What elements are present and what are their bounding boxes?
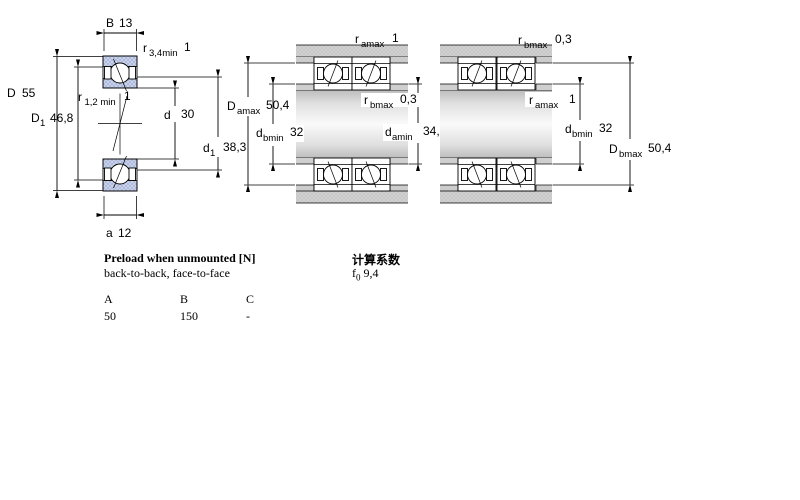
- label-dbmin-sub: bmin: [572, 129, 593, 140]
- label-rbmax-value: 0,3: [400, 92, 417, 106]
- bearing-section: [98, 56, 142, 191]
- label-damin: d: [385, 125, 392, 139]
- bearing-unit: [314, 158, 352, 191]
- label-Dbmax-value: 50,4: [648, 141, 672, 155]
- label-ramax-sub: amax: [361, 39, 384, 50]
- label-D1: D: [31, 111, 40, 125]
- preload-value-A: 50: [104, 309, 116, 324]
- cage: [105, 67, 112, 80]
- single-bearing-cross-section-view: B 13 r 3,4min 1 D 55 D 1 46,8 r 1,2 min …: [7, 16, 247, 240]
- label-B: B: [106, 16, 114, 30]
- label-a-value: 12: [118, 226, 132, 240]
- face-to-face-arrangement-view: r bmax 0,3 r amax 1 d bmin 32 D bmax 50,…: [440, 32, 672, 203]
- label-D: D: [7, 86, 16, 100]
- label-D1-value: 46,8: [50, 111, 74, 125]
- preload-subtitle: back-to-back, face-to-face: [104, 266, 230, 281]
- preload-value-B: 150: [180, 309, 198, 324]
- dimension-lines: [57, 33, 218, 215]
- label-damin-sub: amin: [392, 132, 413, 143]
- label-ramax-value: 1: [392, 31, 399, 45]
- label-Damax-value: 50,4: [266, 98, 290, 112]
- label-dbmin-sub: bmin: [263, 133, 284, 144]
- label-ramax: r: [355, 32, 359, 46]
- cage: [129, 67, 136, 80]
- label-rbmax-sub: bmax: [370, 100, 393, 111]
- label-Dbmax: D: [609, 142, 618, 156]
- label-ramax: r: [529, 93, 533, 107]
- housing: [296, 45, 408, 57]
- housing: [440, 191, 552, 203]
- preload-column-C: C: [246, 292, 254, 307]
- label-d1-value: 38,3: [223, 140, 247, 154]
- label-D-value: 55: [22, 86, 36, 100]
- preload-value-C: -: [246, 309, 250, 324]
- bearing-unit: [458, 158, 496, 191]
- label-dbmin-value: 32: [599, 121, 613, 135]
- label-Damax-sub: amax: [237, 106, 260, 117]
- label-r34min-value: 1: [184, 40, 191, 54]
- f0-value: 9,4: [364, 266, 379, 280]
- bearing-unit: [314, 57, 352, 90]
- label-rbmax-sub: bmax: [524, 40, 547, 51]
- label-d-value: 30: [181, 107, 195, 121]
- calculation-f0-row: f0 9,4: [352, 266, 379, 282]
- bearing-unit: [352, 158, 390, 191]
- label-r12min: r: [78, 90, 82, 104]
- label-d1-sub: 1: [210, 148, 215, 159]
- label-dbmin: d: [565, 122, 572, 136]
- f0-subscript: 0: [356, 272, 361, 282]
- left-view-labels: B 13 r 3,4min 1 D 55 D 1 46,8 r 1,2 min …: [7, 16, 247, 240]
- label-r12min-sub: 1,2 min: [85, 97, 116, 108]
- label-Damax: D: [227, 99, 236, 113]
- label-r12min-value: 1: [124, 89, 131, 103]
- bearing-datasheet-drawing: B 13 r 3,4min 1 D 55 D 1 46,8 r 1,2 min …: [0, 0, 800, 500]
- label-rbmax: r: [518, 33, 522, 47]
- preload-column-B: B: [180, 292, 188, 307]
- label-D1-sub: 1: [40, 118, 45, 129]
- preload-column-A: A: [104, 292, 113, 307]
- label-ramax-value: 1: [569, 92, 576, 106]
- cage: [105, 168, 112, 181]
- bearing-unit: [352, 57, 390, 90]
- cage: [129, 168, 136, 181]
- bearing-unit: [497, 158, 535, 191]
- label-Dbmax-sub: bmax: [619, 149, 642, 160]
- label-r34min-sub: 3,4min: [149, 48, 178, 59]
- bearing-unit: [497, 57, 535, 90]
- housing: [296, 191, 408, 203]
- label-B-value: 13: [119, 16, 133, 30]
- label-ramax-sub: amax: [535, 100, 558, 111]
- ball: [110, 164, 130, 184]
- preload-title: Preload when unmounted [N]: [104, 251, 255, 266]
- label-r34min: r: [143, 41, 147, 55]
- bearing-unit: [458, 57, 496, 90]
- label-d: d: [164, 108, 171, 122]
- label-dbmin-value: 32: [290, 125, 304, 139]
- label-rbmax-value: 0,3: [555, 32, 572, 46]
- label-a: a: [106, 226, 113, 240]
- ball: [110, 63, 130, 83]
- bearing-technical-drawing: B 13 r 3,4min 1 D 55 D 1 46,8 r 1,2 min …: [0, 0, 800, 350]
- label-rbmax: r: [364, 93, 368, 107]
- label-d1: d: [203, 141, 210, 155]
- back-to-back-arrangement-view: r amax 1 D amax 50,4 r bmax 0,3 d bmin 3…: [227, 31, 447, 203]
- label-dbmin: d: [256, 126, 263, 140]
